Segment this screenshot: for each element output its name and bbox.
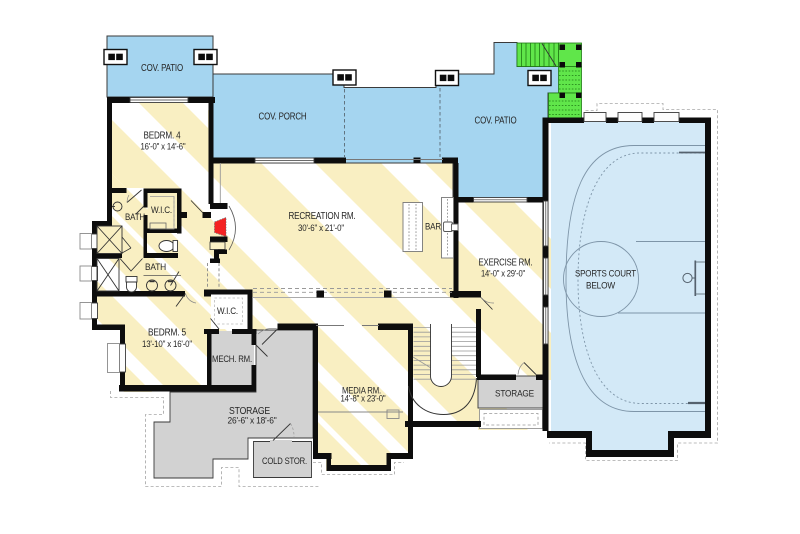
svg-text:BAR: BAR [425, 222, 441, 233]
svg-text:COV. PATIO: COV. PATIO [475, 116, 517, 127]
svg-text:30'-6" x 21'-0": 30'-6" x 21'-0" [298, 223, 344, 233]
svg-text:COLD STOR.: COLD STOR. [262, 456, 307, 466]
svg-text:SPORTS COURT: SPORTS COURT [575, 269, 636, 280]
svg-text:MECH. RM.: MECH. RM. [212, 354, 252, 364]
svg-text:COV. PATIO: COV. PATIO [141, 63, 183, 74]
svg-text:COV. PORCH: COV. PORCH [259, 112, 307, 123]
svg-text:BATH: BATH [125, 212, 145, 223]
svg-text:BELOW: BELOW [586, 281, 616, 292]
svg-text:14'-8" x 23'-0": 14'-8" x 23'-0" [341, 394, 386, 404]
svg-text:W.I.C.: W.I.C. [151, 205, 172, 215]
svg-text:BATH: BATH [145, 262, 166, 273]
svg-text:RECREATION RM.: RECREATION RM. [289, 211, 356, 222]
svg-text:EXERCISE RM.: EXERCISE RM. [479, 258, 533, 269]
svg-text:BEDRM. 5: BEDRM. 5 [148, 328, 187, 339]
svg-text:BEDRM. 4: BEDRM. 4 [144, 131, 182, 142]
svg-text:STORAGE: STORAGE [495, 389, 534, 400]
svg-text:26'-6" x 18'-6": 26'-6" x 18'-6" [228, 416, 277, 426]
svg-text:16'-0" x 14'-6": 16'-0" x 14'-6" [141, 142, 186, 152]
svg-text:14'-0" x 29'-0": 14'-0" x 29'-0" [481, 269, 525, 279]
svg-text:W.I.C.: W.I.C. [217, 306, 238, 316]
svg-text:13'-10" x 16'-0": 13'-10" x 16'-0" [142, 339, 192, 349]
